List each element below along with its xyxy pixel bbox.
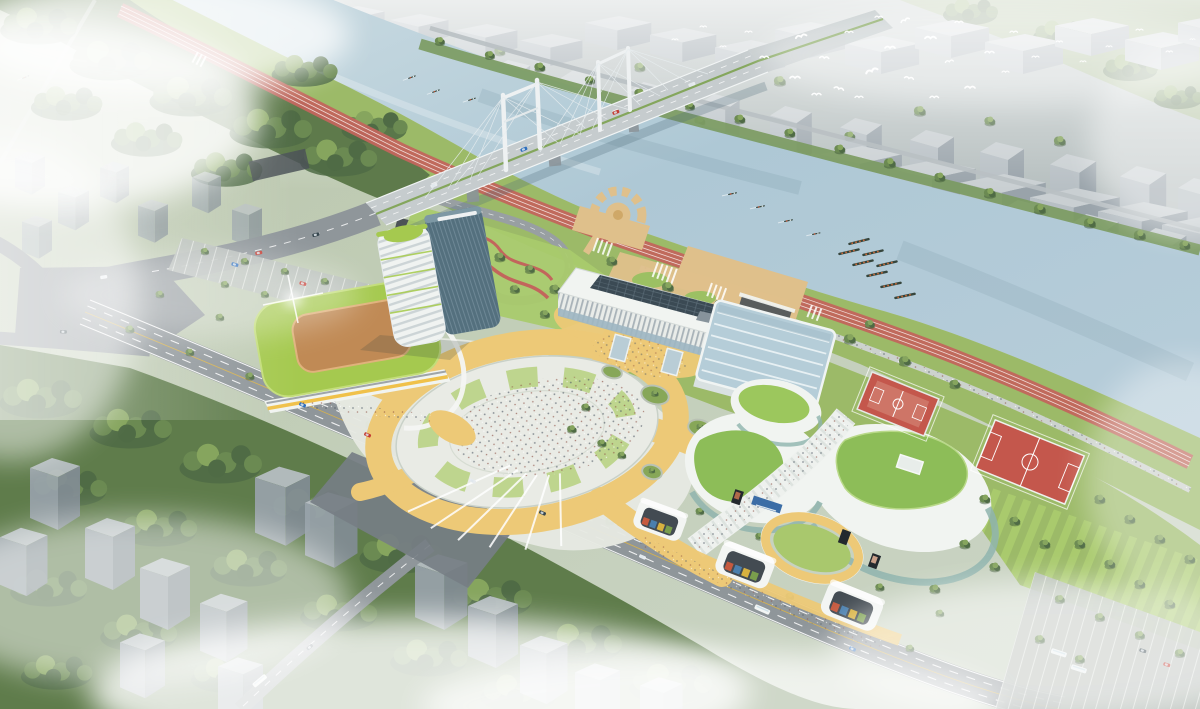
architectural-rendering	[0, 0, 1200, 709]
rendering-canvas	[0, 0, 1200, 709]
